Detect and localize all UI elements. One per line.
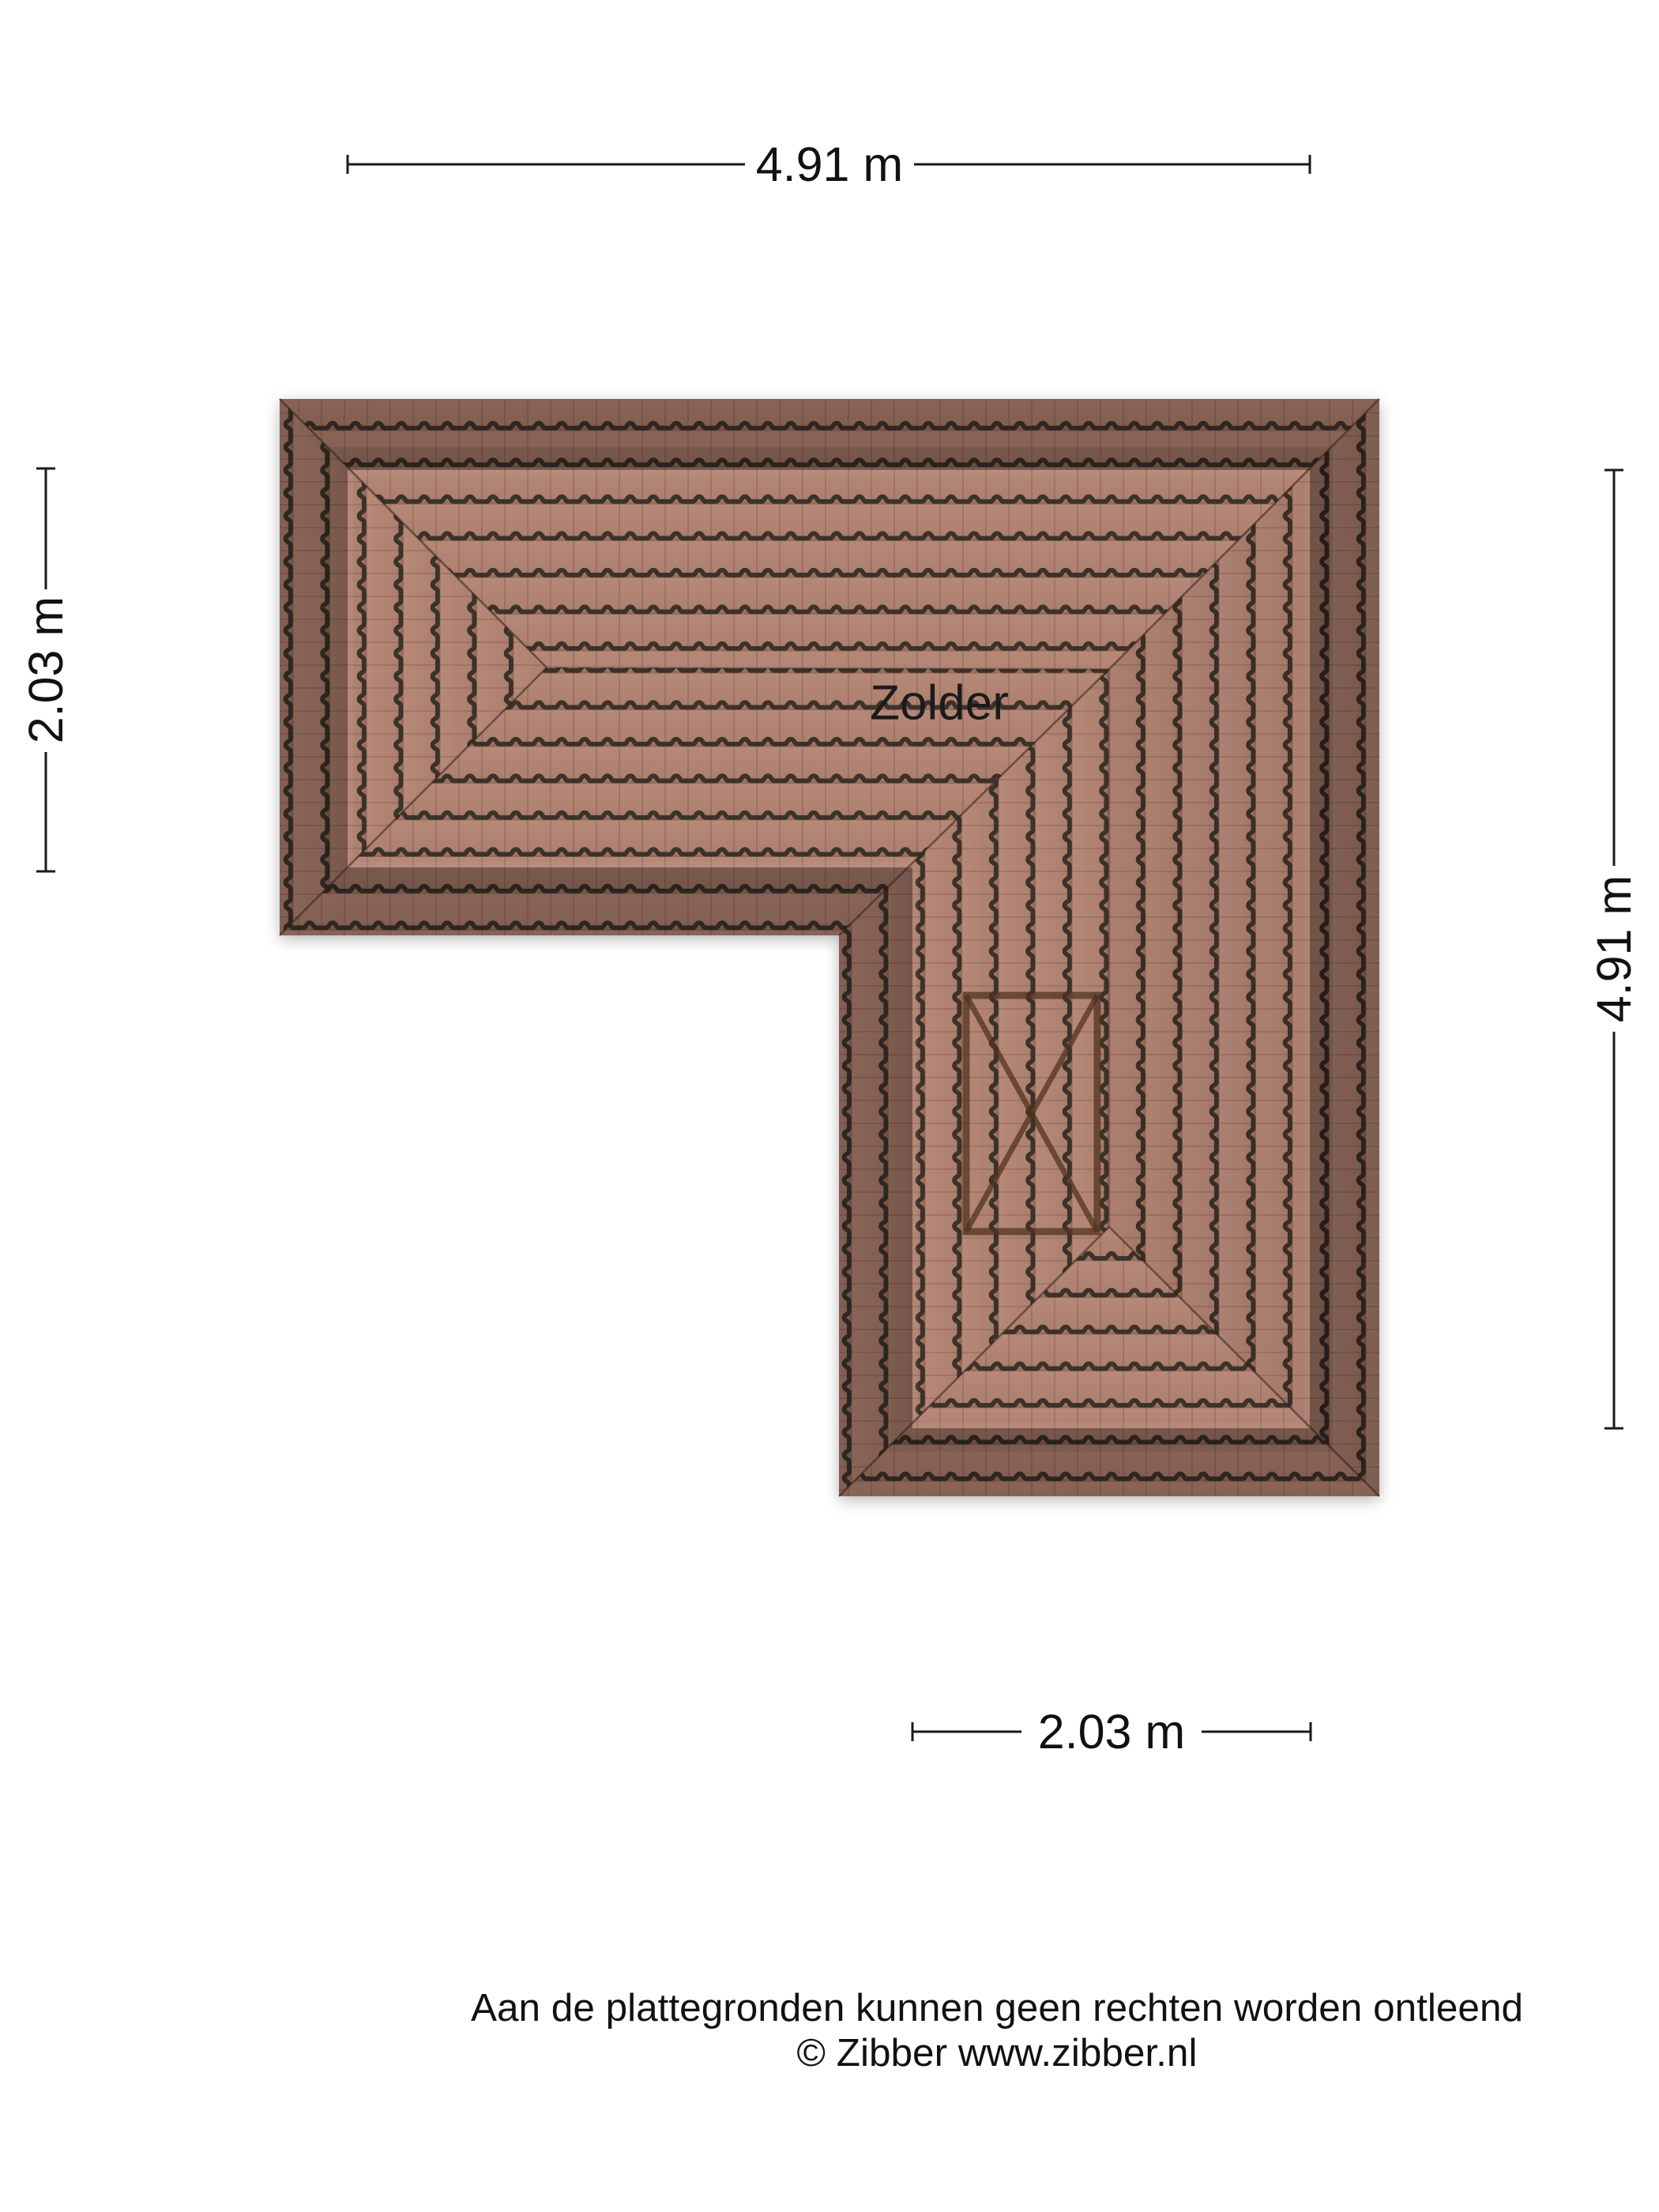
svg-text:© Zibber www.zibber.nl: © Zibber www.zibber.nl [797,2031,1198,2075]
svg-text:2.03 m: 2.03 m [19,596,73,744]
svg-text:4.91 m: 4.91 m [756,137,904,191]
svg-text:Zolder: Zolder [870,676,1009,731]
svg-text:Aan de plattegronden kunnen ge: Aan de plattegronden kunnen geen rechten… [471,1986,1523,2030]
svg-text:2.03 m: 2.03 m [1038,1705,1186,1759]
svg-text:4.91 m: 4.91 m [1587,875,1641,1023]
